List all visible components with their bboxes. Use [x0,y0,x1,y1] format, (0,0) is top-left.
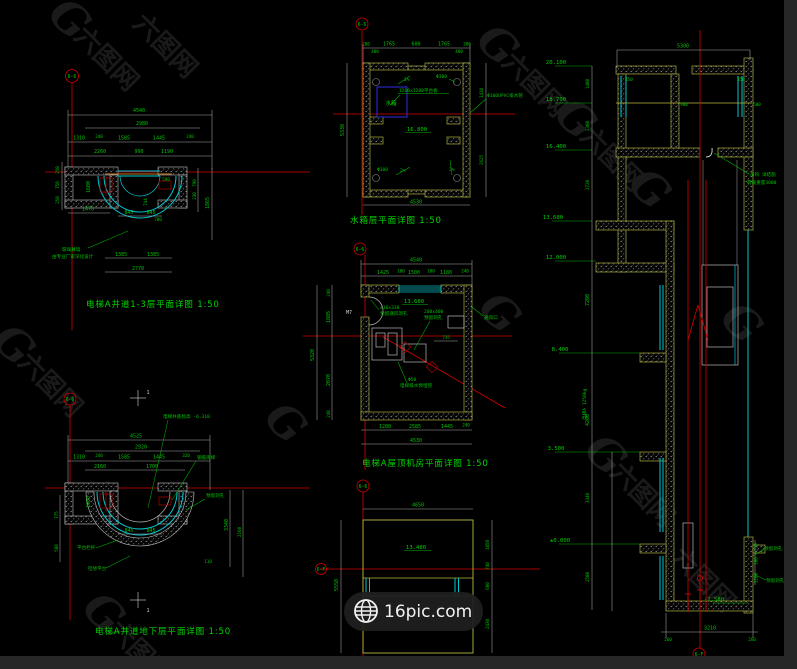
svg-text:7200: 7200 [585,294,591,306]
svg-text:580: 580 [54,544,59,552]
shaft-left-wall [666,221,674,610]
svg-text:2920: 2920 [135,445,147,451]
hook-note: 吊钩 详结施 [750,171,776,178]
svg-text:320: 320 [182,453,190,458]
svg-text:1470: 1470 [82,207,94,213]
svg-text:预留洞孔: 预留洞孔 [424,314,443,321]
svg-text:6-6: 6-6 [358,22,367,28]
svg-text:5320: 5320 [310,349,316,361]
site-badge[interactable]: 16pic.com [344,592,483,631]
svg-text:845: 845 [146,528,155,534]
svg-text:845: 845 [124,528,133,534]
svg-text:100: 100 [427,269,435,274]
svg-text:240: 240 [95,134,103,139]
svg-text:2770: 2770 [132,266,144,272]
svg-text:4525: 4525 [130,434,142,440]
svg-text:750: 750 [55,181,60,189]
svg-text:1385: 1385 [115,252,127,258]
tank-label: 水箱 [385,99,397,107]
svg-text:1280: 1280 [379,424,391,430]
svg-text:G: G [710,292,773,355]
svg-text:1180: 1180 [440,270,452,276]
svg-text:2980: 2980 [136,121,148,127]
svg-text:1765: 1765 [438,42,450,48]
svg-text:6-6: 6-6 [359,484,368,490]
svg-text:1410: 1410 [479,87,484,98]
svg-text:740: 740 [485,562,490,570]
plan4-title: 电梯A井道地下层平面详图 1:50 [95,625,231,637]
svg-text:260: 260 [664,637,672,642]
svg-text:Φ300: Φ300 [377,167,388,173]
svg-text:1600: 1600 [86,496,92,508]
svg-text:480: 480 [455,49,463,54]
svg-text:744: 744 [143,198,148,206]
svg-text:1200: 1200 [754,572,759,583]
svg-text:3340: 3340 [224,519,230,531]
svg-text:2300: 2300 [585,120,590,131]
frame-border-bottom [0,656,797,669]
svg-text:荷载重量3000: 荷载重量3000 [747,179,777,186]
svg-text:240: 240 [326,289,331,297]
svg-text:1: 1 [146,608,149,614]
svg-text:1190: 1190 [161,149,173,155]
plan1-title: 电梯A井道1-3层平面详图 1:50 [86,298,220,310]
svg-text:16.400: 16.400 [546,144,566,150]
louver-note: 通风口 [484,314,498,321]
svg-text:260: 260 [748,637,756,642]
svg-text:预留洞孔: 预留洞孔 [764,545,783,552]
svg-text:110: 110 [204,559,212,564]
door-mark: M7 [346,310,352,316]
svg-text:240: 240 [461,269,469,274]
curved-pit-wall [86,492,194,546]
svg-text:775: 775 [54,511,59,519]
svg-text:1700: 1700 [146,464,158,470]
svg-text:4540: 4540 [410,258,422,264]
level-13480: 13.480 [406,545,426,551]
svg-text:1445: 1445 [153,136,165,142]
svg-text:G: G [468,282,531,345]
leader-line [88,231,128,248]
svg-text:钢筋爬梯: 钢筋爬梯 [197,454,216,461]
svg-text:1850: 1850 [485,539,490,550]
svg-text:200: 200 [754,557,759,565]
svg-text:845: 845 [146,210,155,216]
svg-text:240: 240 [95,453,103,458]
shaft-outline [363,520,473,653]
plan3-title: 电梯A屋顶机房平面详图 1:50 [362,457,489,469]
svg-text:20.100: 20.100 [546,60,566,66]
svg-text:2720: 2720 [585,179,590,190]
badge-label: 16pic.com [384,602,472,622]
svg-text:2260: 2260 [94,149,106,155]
svg-text:6-F: 6-F [317,567,326,573]
svg-text:6-6: 6-6 [356,247,365,253]
svg-text:3210: 3210 [704,626,716,632]
cad-canvas: G六图网 六图网 G六图网 G六图网 G G六图网 G六图网 G G六图网 六图… [0,0,797,669]
svg-text:2625: 2625 [479,154,484,165]
curtain-wall-note: 玻璃幕墙 [62,246,81,253]
svg-text:1310: 1310 [73,455,85,461]
svg-text:2500: 2500 [585,571,590,582]
plan-machine-room: 6-6 4540 1425 100 1500 100 1180 240 5320… [303,243,512,470]
plan-shaft-floors-1-3: 6-6 4540 2980 1310 240 1585 1445 2 [45,70,310,331]
svg-text:600: 600 [411,42,420,48]
svg-text:200: 200 [463,42,471,47]
svg-text:900: 900 [680,102,688,107]
svg-text:1585: 1585 [118,455,130,461]
svg-text:5300: 5300 [677,44,689,50]
section-marker-top: 1 [130,390,150,406]
pit-level-note: 电梯井底标高 -6.310 [163,413,210,420]
svg-text:240: 240 [462,423,470,428]
svg-text:18.700: 18.700 [546,97,566,103]
svg-text:4530: 4530 [410,200,422,206]
svg-text:200: 200 [362,42,370,47]
plan2-title: 水箱层平面详图 1:50 [350,214,442,226]
svg-text:平台栏杆: 平台栏杆 [77,544,96,551]
svg-text:1400: 1400 [585,78,590,89]
svg-text:4530: 4530 [410,438,422,444]
svg-text:预留通风洞孔: 预留通风洞孔 [380,310,408,317]
svg-text:1200x1200平台板: 1200x1200平台板 [399,87,438,94]
svg-text:790: 790 [192,179,197,187]
svg-text:预留洞孔: 预留洞孔 [206,492,225,499]
svg-text:1500: 1500 [408,270,420,276]
opening-symbol [399,341,410,352]
svg-text:1600: 1600 [86,181,92,193]
svg-text:1445: 1445 [441,424,453,430]
level-16800: 16.800 [407,127,427,133]
svg-text:590: 590 [162,177,170,182]
svg-text:500: 500 [753,102,761,107]
level-13680: 13.680 [404,299,424,305]
capacity-note: 电梯A 1250kg [581,388,588,420]
frame-border-right [784,0,797,669]
svg-text:250: 250 [55,166,60,174]
svg-text:250: 250 [55,196,60,204]
svg-text:1865: 1865 [205,197,211,209]
svg-text:735: 735 [442,335,450,340]
axis-label: 6-6 [68,74,77,80]
svg-text:230: 230 [192,192,197,200]
svg-text:六图网: 六图网 [12,347,88,423]
dim: 4540 [133,108,145,114]
svg-text:2430: 2430 [485,618,490,629]
hook-symbol [706,148,712,157]
svg-text:1585: 1585 [118,136,130,142]
svg-text:Φ300: Φ300 [436,74,447,80]
svg-text:检修平台: 检修平台 [88,565,107,572]
svg-text:3.500: 3.500 [548,446,565,452]
svg-text:±0.000: ±0.000 [550,538,570,544]
section-marker-bottom: 1 [130,592,150,614]
svg-text:12.000: 12.000 [546,255,566,261]
svg-text:845: 845 [124,210,133,216]
svg-text:1885: 1885 [326,311,332,323]
svg-text:8.400: 8.400 [552,347,569,353]
svg-text:Φ50: Φ50 [408,377,417,383]
svg-text:100: 100 [397,269,405,274]
svg-text:5330: 5330 [340,124,346,136]
svg-text:700: 700 [154,217,162,222]
svg-text:680: 680 [485,582,490,590]
svg-text:1765: 1765 [383,42,395,48]
svg-text:430x330: 430x330 [380,305,400,311]
svg-text:2070: 2070 [326,374,332,386]
svg-text:1: 1 [146,390,149,396]
svg-text:由专业厂家深化设计: 由专业厂家深化设计 [52,253,94,260]
svg-text:3340: 3340 [585,492,590,503]
svg-text:5550: 5550 [334,579,340,591]
svg-text:2160: 2160 [237,526,242,537]
svg-text:预留洞孔: 预留洞孔 [766,577,785,584]
svg-text:200x400: 200x400 [424,309,444,315]
svg-text:450: 450 [737,77,745,82]
svg-text:13.680: 13.680 [543,215,563,221]
svg-text:电梯排水预埋管: 电梯排水预埋管 [400,382,433,389]
svg-text:1385: 1385 [147,252,159,258]
svg-text:1425: 1425 [377,270,389,276]
svg-text:990: 990 [134,149,143,155]
svg-text:2160: 2160 [94,464,106,470]
svg-text:510: 510 [754,543,759,551]
svg-text:480: 480 [371,49,379,54]
svg-text:240: 240 [326,410,331,418]
svg-text:240: 240 [186,134,194,139]
svg-text:G: G [254,392,317,455]
svg-text:4650: 4650 [412,503,424,509]
svg-text:1310: 1310 [73,136,85,142]
svg-text:450: 450 [625,77,633,82]
svg-text:2585: 2585 [409,424,421,430]
pit-level: -2.580 [704,597,724,603]
svg-text:6-6: 6-6 [66,397,75,403]
pvc-pipe-note: Φ100UPVC排水管 [487,92,523,99]
